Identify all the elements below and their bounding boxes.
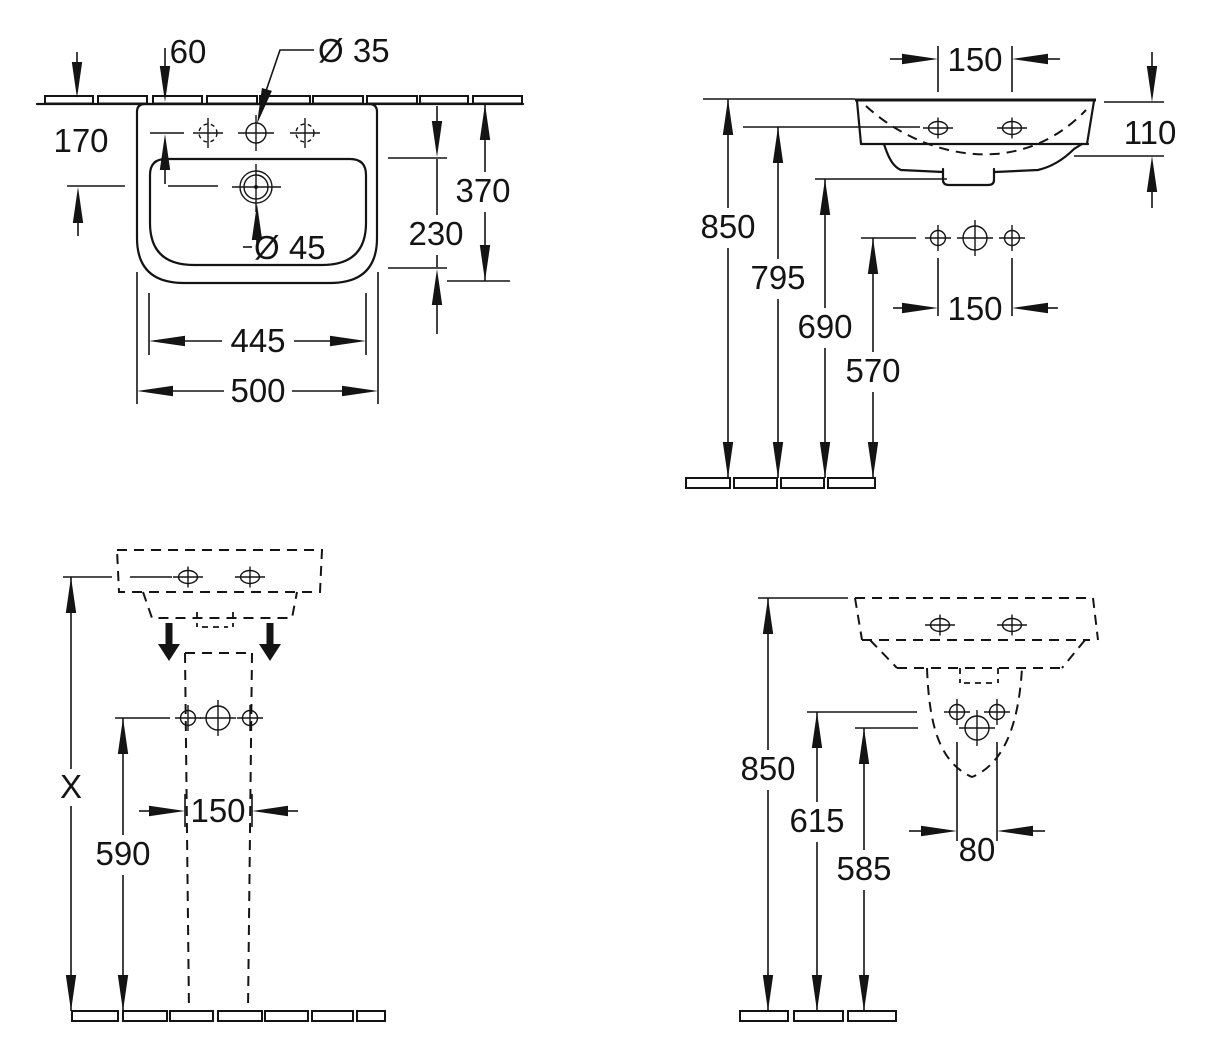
dim-150-mid: 150 xyxy=(893,258,1058,327)
floor-hatch-side-pedestal-view xyxy=(740,1011,896,1021)
basin-dashed-outline xyxy=(117,550,322,627)
dim-590: 590 xyxy=(95,718,170,1011)
bowl-interior-dashed xyxy=(866,106,1086,154)
dim-dia45: Ø 45 xyxy=(243,204,326,266)
dim-label-X: X xyxy=(60,768,82,805)
dim-170: 170 xyxy=(53,52,218,236)
drain-hole xyxy=(232,164,281,212)
dim-570: 570 xyxy=(845,238,916,478)
dim-label-150-top: 150 xyxy=(947,41,1002,78)
tap-hole-marker-left xyxy=(173,567,203,588)
dim-230: 230 xyxy=(388,106,464,334)
dim-150-top: 150 xyxy=(890,41,1060,92)
tap-hole-marker-left xyxy=(925,615,955,636)
dim-label-170: 170 xyxy=(53,122,108,159)
dim-label-60: 60 xyxy=(170,33,207,70)
dim-label-590: 590 xyxy=(95,835,150,872)
basin-dashed-profile xyxy=(855,598,1098,777)
wall-hatch xyxy=(37,96,523,104)
tap-hole-marker-left xyxy=(923,118,953,139)
dim-label-850: 850 xyxy=(700,208,755,245)
tap-hole-marker-right xyxy=(997,615,1027,636)
dim-label-dia45: Ø 45 xyxy=(254,229,326,266)
side-pedestal-view: 850 615 585 80 xyxy=(740,598,1098,1021)
dim-label-570: 570 xyxy=(845,352,900,389)
dim-label-445: 445 xyxy=(230,322,285,359)
supply-holes-wall xyxy=(925,220,1025,256)
floor-hatch-side-view xyxy=(686,478,875,488)
dim-label-150-pedestal: 150 xyxy=(190,792,245,829)
dim-label-370: 370 xyxy=(455,172,510,209)
dim-dia35: Ø 35 xyxy=(252,32,390,125)
dim-80: 80 xyxy=(909,742,1045,868)
dim-X: X xyxy=(60,577,172,1011)
side-elevation-view: 150 110 850 795 xyxy=(686,41,1176,488)
drain-boss-dashed xyxy=(960,668,998,683)
tap-hole-center xyxy=(238,115,274,151)
technical-drawing-page: 60 170 Ø 35 Ø 45 xyxy=(0,0,1223,1059)
bowl-dashed-u xyxy=(927,668,1022,777)
washbasin-dimension-drawing: 60 170 Ø 35 Ø 45 xyxy=(0,0,1223,1059)
drain-boss-dashed xyxy=(197,612,233,627)
floor-hatch-front-view xyxy=(72,1011,385,1021)
dim-label-585: 585 xyxy=(836,850,891,887)
supply-holes xyxy=(175,700,263,736)
dim-445: 445 xyxy=(149,293,366,359)
mounting-arrow-left xyxy=(158,623,180,661)
basin-profile xyxy=(855,100,1096,185)
dim-370: 370 xyxy=(447,104,511,281)
dim-585: 585 xyxy=(836,728,918,1011)
front-pedestal-view: X 590 150 xyxy=(60,550,385,1021)
tap-hole-marker-right xyxy=(997,118,1027,139)
dim-label-110: 110 xyxy=(1124,114,1177,151)
drain-boss xyxy=(943,169,994,185)
supply-holes xyxy=(944,699,1010,746)
dim-150-pedestal: 150 xyxy=(139,792,298,829)
dim-label-795: 795 xyxy=(750,259,805,296)
dim-label-dia35: Ø 35 xyxy=(318,32,390,69)
dim-label-230: 230 xyxy=(408,215,463,252)
dim-label-80: 80 xyxy=(959,831,996,868)
tap-hole-right xyxy=(290,118,320,148)
tap-hole-left xyxy=(193,118,223,148)
tap-hole-marker-right xyxy=(235,567,265,588)
dim-label-150-mid: 150 xyxy=(947,290,1002,327)
dim-label-690: 690 xyxy=(797,308,852,345)
dim-label-615: 615 xyxy=(789,802,844,839)
dim-label-850-pedestal: 850 xyxy=(740,750,795,787)
mounting-arrow-right xyxy=(259,623,281,661)
dim-label-500: 500 xyxy=(230,372,285,409)
plan-view: 60 170 Ø 35 Ø 45 xyxy=(37,32,523,409)
